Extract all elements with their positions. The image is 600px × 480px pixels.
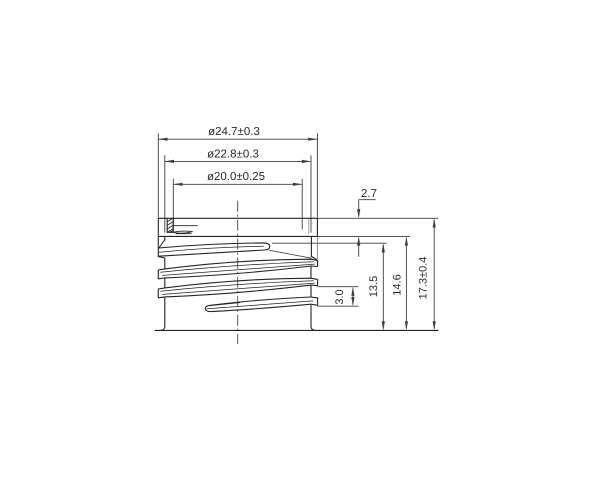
svg-text:ø20.0±0.25: ø20.0±0.25 — [207, 171, 265, 183]
svg-text:17.3±0.4: 17.3±0.4 — [418, 257, 430, 300]
svg-text:13.5: 13.5 — [368, 276, 380, 297]
svg-text:3.0: 3.0 — [334, 289, 346, 304]
svg-text:ø24.7±0.3: ø24.7±0.3 — [208, 126, 260, 138]
svg-text:14.6: 14.6 — [392, 274, 404, 295]
svg-text:ø22.8±0.3: ø22.8±0.3 — [207, 149, 259, 161]
svg-text:2.7: 2.7 — [361, 188, 377, 200]
